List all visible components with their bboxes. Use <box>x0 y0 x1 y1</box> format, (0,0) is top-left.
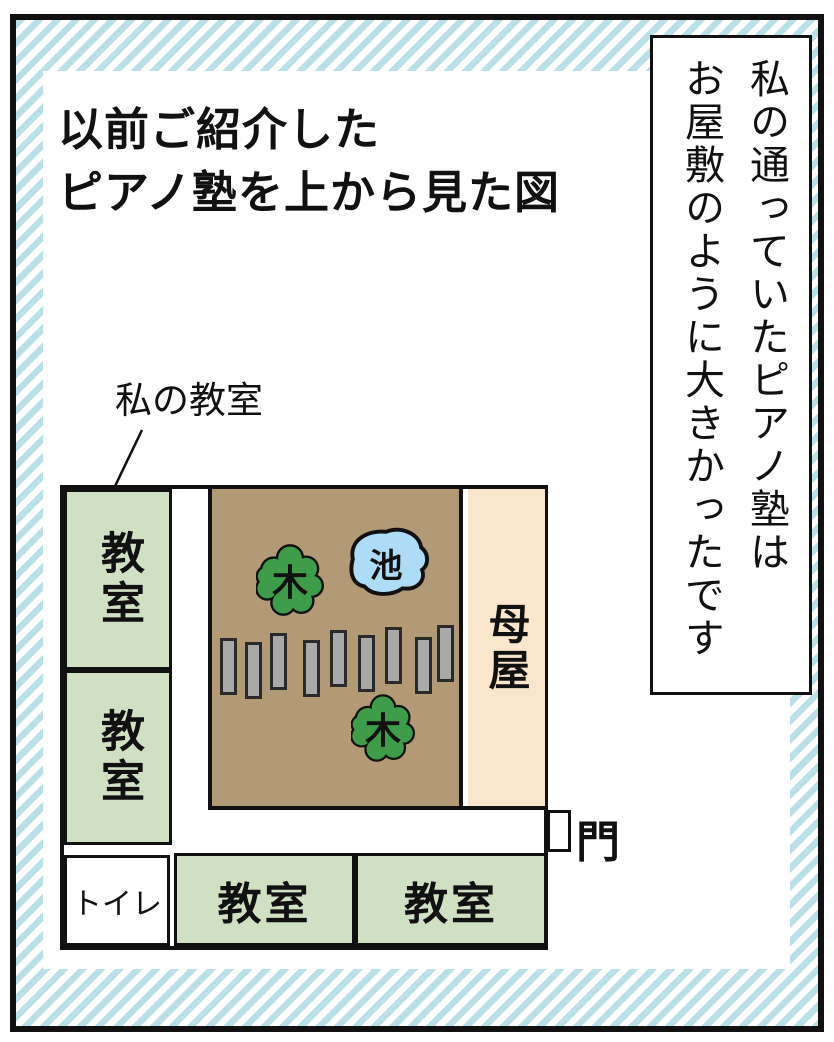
gate-marker <box>547 810 571 852</box>
my-classroom-pointer-label: 私の教室 <box>115 370 263 424</box>
side-note-box: 私の通っていたピアノ塾は お屋敷のように大きかったです <box>650 35 812 695</box>
classroom-bottom-right: 教室 <box>355 853 547 946</box>
classroom-bottom-center: 教室 <box>174 853 355 946</box>
tree: 木 <box>351 694 415 762</box>
stepping-stone-icon <box>270 633 287 690</box>
pond: 池 <box>340 524 432 602</box>
walkway-divider-line <box>463 806 548 810</box>
main-house: 母屋 <box>468 489 545 806</box>
stepping-stone-icon <box>415 637 432 694</box>
tree-label: 木 <box>365 702 401 754</box>
stepping-stone-icon <box>303 640 320 697</box>
side-note-text: 私の通っていたピアノ塾は お屋敷のように大きかったです <box>668 58 798 672</box>
stepping-stone-icon <box>220 638 237 695</box>
tree-label: 木 <box>272 554 308 606</box>
stepping-stone-icon <box>358 635 375 692</box>
page-title: 以前ご紹介した ピアノ塾を上から見た図 <box>58 98 560 224</box>
toilet-room: トイレ <box>64 855 170 946</box>
classroom-left-bottom: 教室 <box>64 670 172 845</box>
pond-label: 池 <box>370 539 403 587</box>
stepping-stone-icon <box>330 630 347 687</box>
comic-panel: 以前ご紹介した ピアノ塾を上から見た図 私の教室 教室 教室 <box>0 0 834 1042</box>
tree: 木 <box>256 544 324 616</box>
stepping-stone-icon <box>245 642 262 699</box>
classroom-left-top: 教室 <box>64 489 172 670</box>
stepping-stone-icon <box>437 625 454 682</box>
gate-label: 門 <box>576 806 620 870</box>
stepping-stone-icon <box>385 627 402 684</box>
floor-plan: 教室 教室 <box>60 485 548 950</box>
